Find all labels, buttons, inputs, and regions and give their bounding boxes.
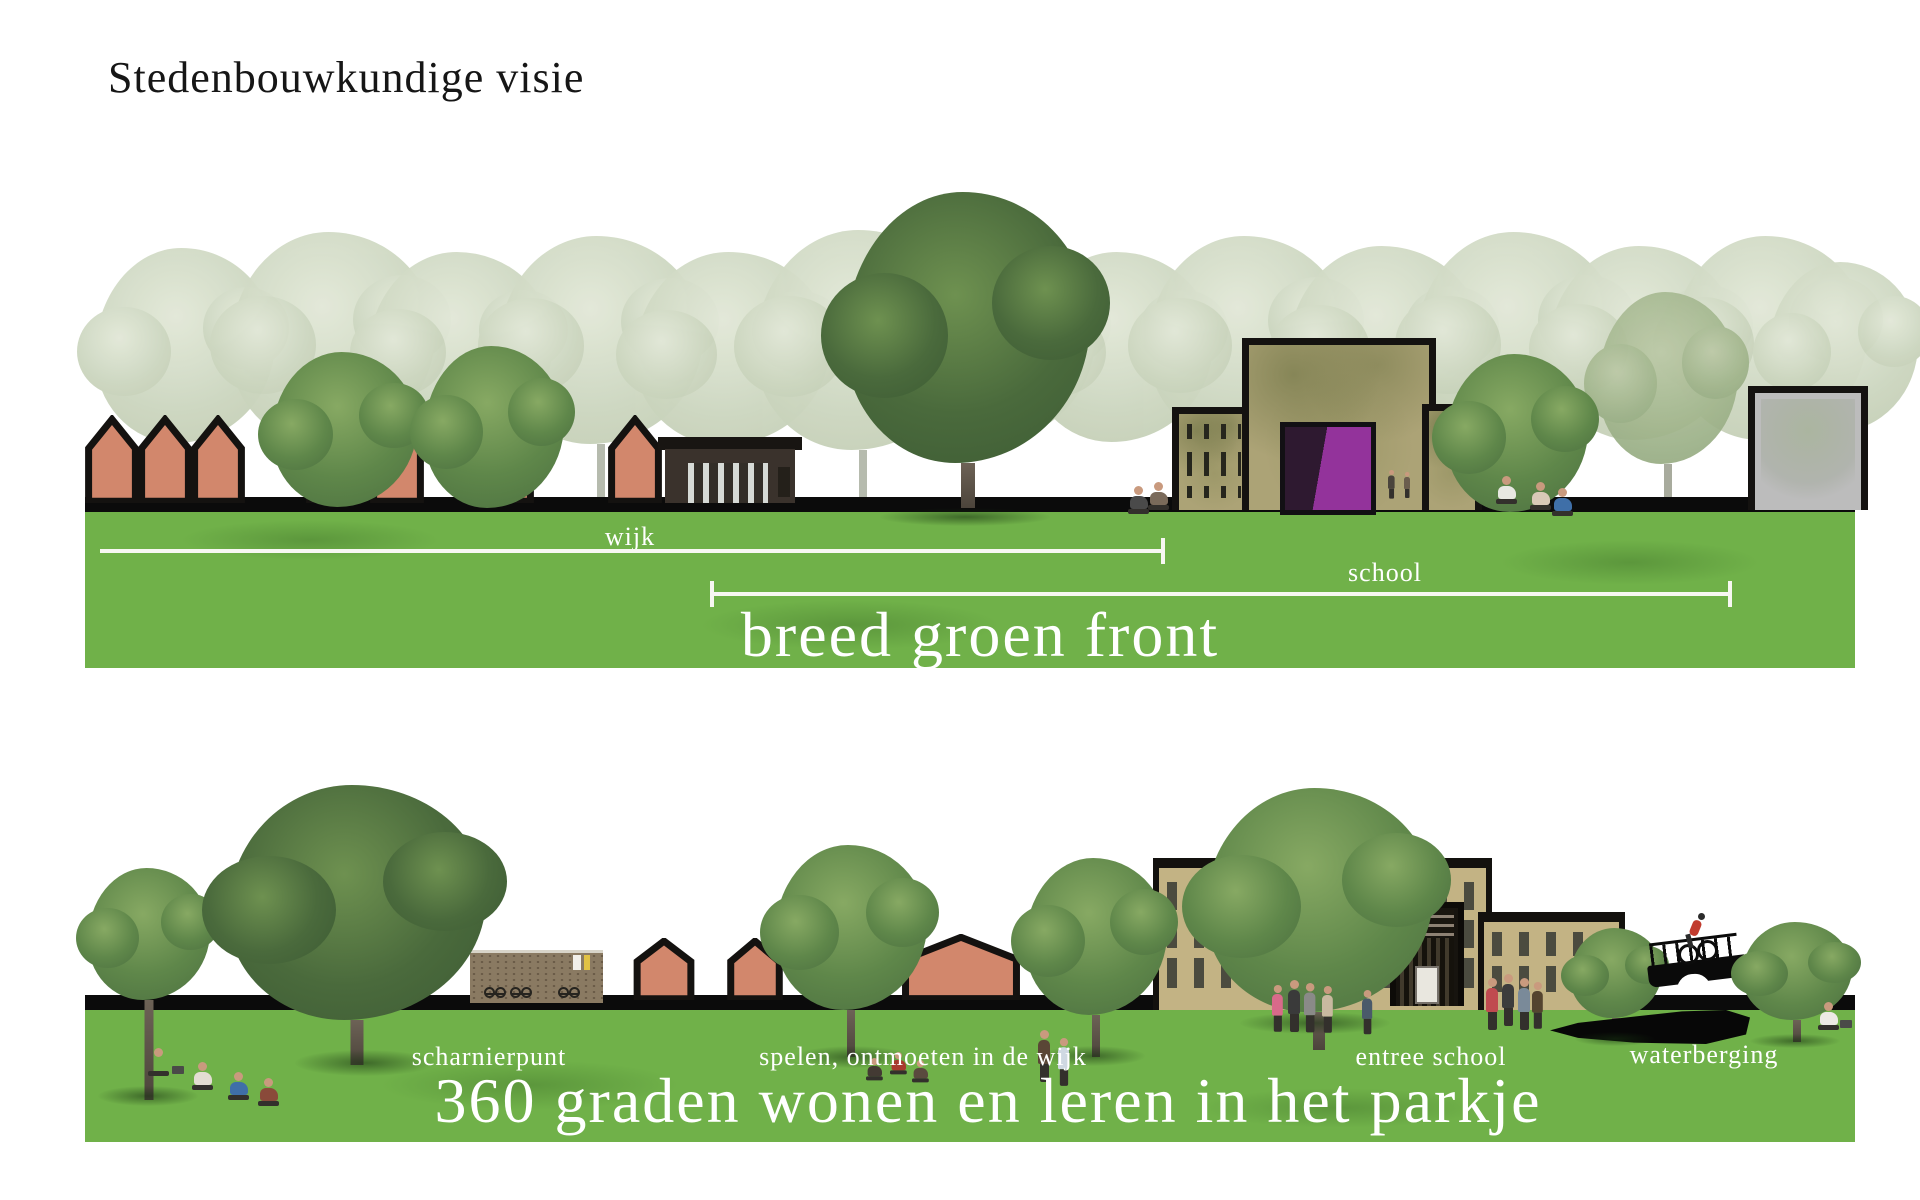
- page-title: Stedenbouwkundige visie: [108, 52, 584, 103]
- caption-360-graden: 360 graden wonen en leren in het parkje: [288, 1064, 1688, 1138]
- person-sitting: [1148, 482, 1169, 510]
- person-standing: [1532, 982, 1543, 1029]
- grass-shading: [180, 520, 440, 560]
- laptop: [172, 1066, 184, 1074]
- person-standing: [1486, 978, 1498, 1030]
- student-standing: [1304, 983, 1315, 1032]
- tree-shadow: [98, 1086, 198, 1106]
- person-standing: [1404, 472, 1410, 498]
- park-tree: [272, 352, 417, 507]
- faded-tree-overlay: [1761, 399, 1855, 504]
- tree-in-front-of-school: [1205, 788, 1433, 1050]
- facade-sign: [584, 955, 590, 970]
- window-slits: [1187, 424, 1241, 439]
- bicycle: [512, 984, 530, 995]
- house: [138, 415, 192, 503]
- person-sitting: [1552, 488, 1573, 516]
- purple-entrance: [1280, 422, 1376, 515]
- caption-breed-groen-front: breed groen front: [580, 598, 1380, 672]
- window-slits: [1187, 452, 1241, 476]
- person-sitting: [228, 1072, 249, 1100]
- laptop: [1840, 1020, 1852, 1028]
- park-tree: [1025, 858, 1167, 1057]
- house: [85, 415, 139, 503]
- urban-vision-diagram: Stedenbouwkundige visie: [0, 0, 1920, 1200]
- house: [608, 415, 662, 503]
- grass-shading: [1500, 540, 1760, 585]
- person-sitting: [258, 1078, 279, 1106]
- student-standing: [1288, 980, 1300, 1032]
- person-sitting-laptop: [1818, 1002, 1839, 1030]
- student-standing: [1322, 986, 1333, 1033]
- person-standing: [1518, 978, 1530, 1030]
- window-slits: [1187, 486, 1241, 498]
- park-tree: [775, 845, 927, 1057]
- person-standing: [1388, 470, 1395, 499]
- student-standing: [1362, 990, 1372, 1034]
- person-sitting: [1496, 476, 1517, 504]
- utility-building: [662, 437, 798, 503]
- bicycle: [560, 984, 578, 995]
- tree-shadow: [880, 508, 1050, 526]
- bicycle: [486, 984, 504, 995]
- student-standing: [1272, 985, 1283, 1032]
- midground-tree: [1598, 292, 1738, 504]
- facade-sign: [573, 955, 581, 970]
- house: [633, 938, 695, 1000]
- large-central-tree: [845, 192, 1090, 508]
- dimension-line-wijk: [100, 549, 1163, 553]
- house: [191, 415, 245, 503]
- person-sitting: [1530, 482, 1551, 510]
- large-park-tree: [228, 785, 486, 1065]
- glass-doors: [688, 463, 768, 503]
- dimension-line-school: [712, 592, 1730, 596]
- person-sitting: [1128, 486, 1149, 514]
- door-panel: [778, 467, 790, 497]
- cyclist: [1678, 916, 1716, 962]
- person-sitting-laptop: [148, 1048, 169, 1076]
- label-school: school: [1285, 558, 1485, 588]
- park-tree: [424, 346, 564, 508]
- gray-building: [1748, 386, 1868, 510]
- label-wijk: wijk: [530, 522, 730, 552]
- person-sitting: [192, 1062, 213, 1090]
- person-standing: [1502, 974, 1514, 1026]
